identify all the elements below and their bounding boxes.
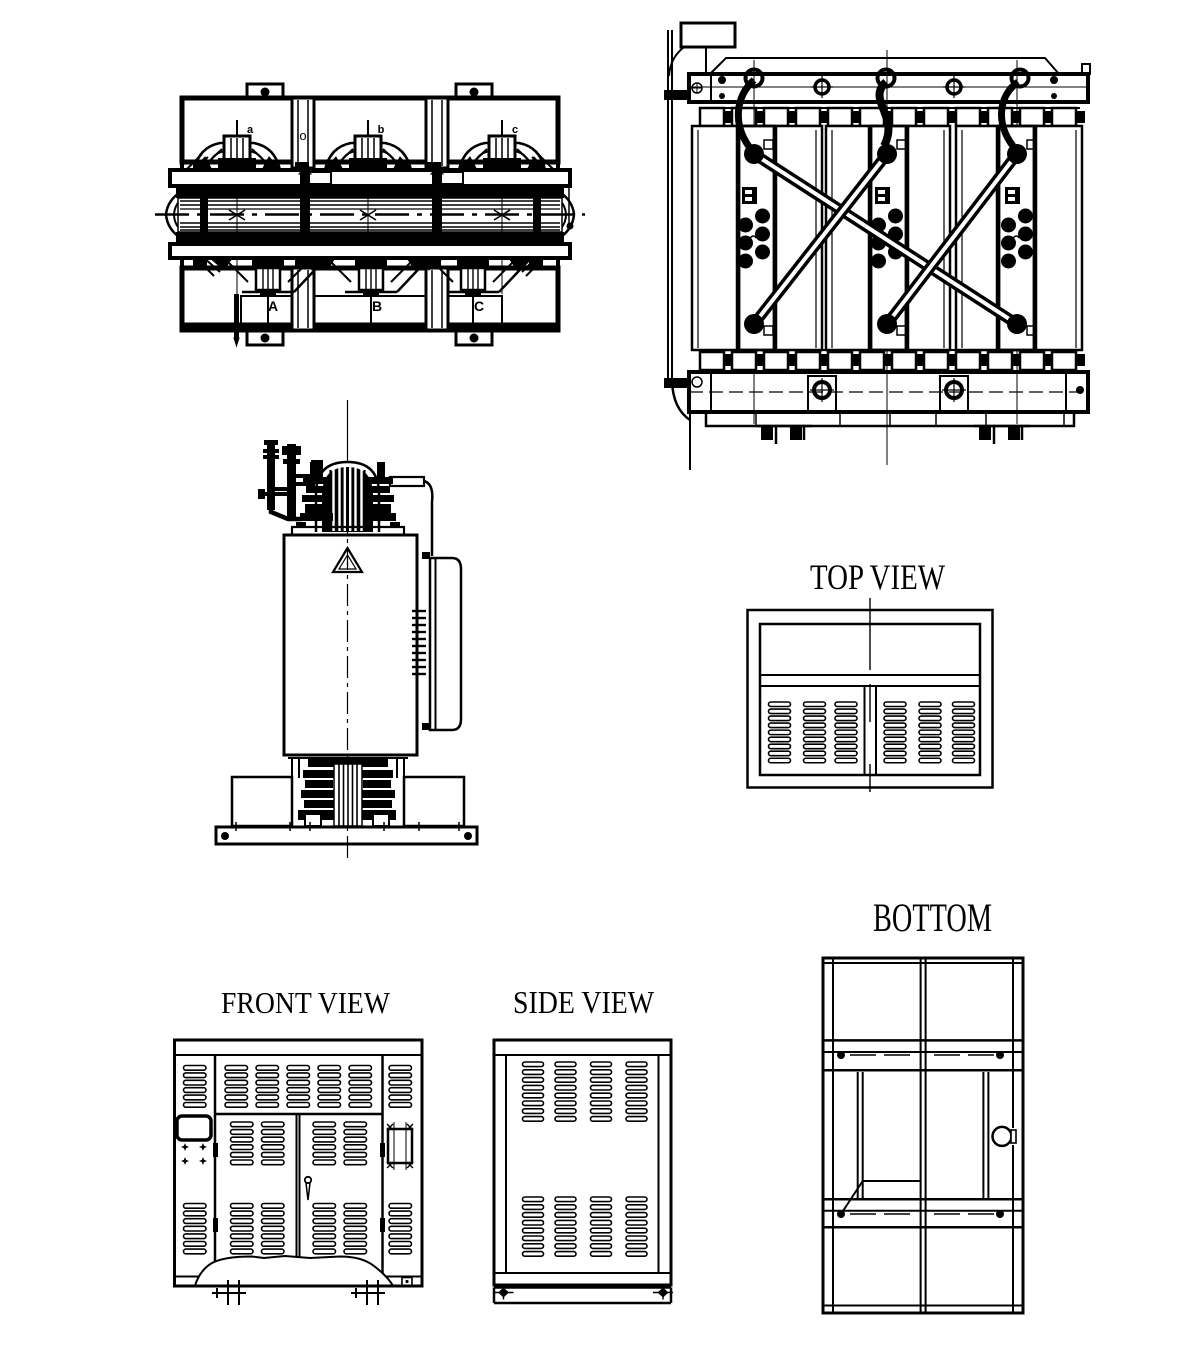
svg-text:b: b: [378, 124, 385, 136]
svg-text:B: B: [372, 298, 382, 314]
svg-text:TOP VIEW: TOP VIEW: [810, 557, 945, 597]
svg-text:o: o: [299, 128, 306, 143]
svg-text:A: A: [268, 298, 278, 314]
svg-text:C: C: [474, 298, 484, 314]
svg-text:BOTTOM: BOTTOM: [873, 895, 992, 940]
svg-text:!: !: [346, 561, 349, 571]
svg-text:FRONT VIEW: FRONT VIEW: [221, 985, 391, 1020]
svg-text:c: c: [512, 124, 518, 136]
svg-text:a: a: [247, 124, 254, 136]
svg-text:SIDE VIEW: SIDE VIEW: [513, 984, 655, 1020]
